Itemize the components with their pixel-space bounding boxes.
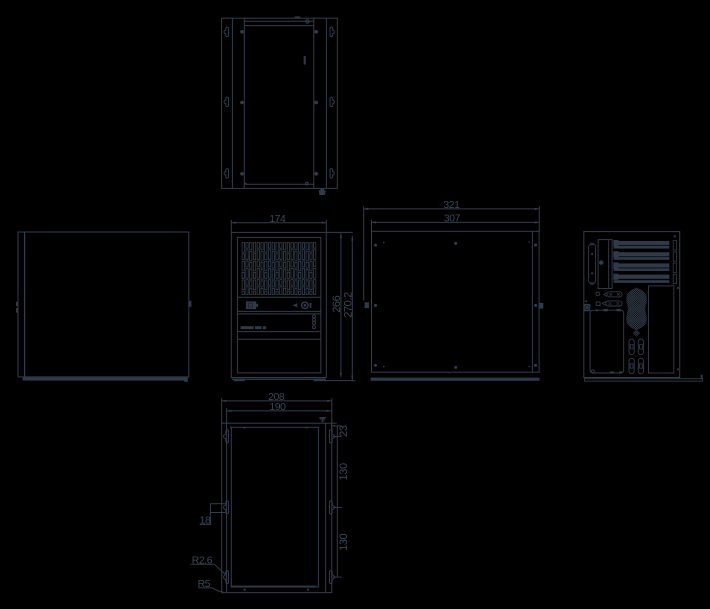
svg-text:270.2: 270.2 [343,292,355,318]
svg-text:130: 130 [338,463,350,480]
svg-text:266: 266 [331,295,343,312]
svg-text:130: 130 [338,533,350,550]
svg-text:23: 23 [338,425,350,437]
svg-text:190: 190 [269,402,286,413]
svg-text:R5: R5 [198,579,211,590]
svg-text:174: 174 [269,214,286,225]
svg-text:18: 18 [200,516,211,527]
svg-text:321: 321 [443,200,460,211]
